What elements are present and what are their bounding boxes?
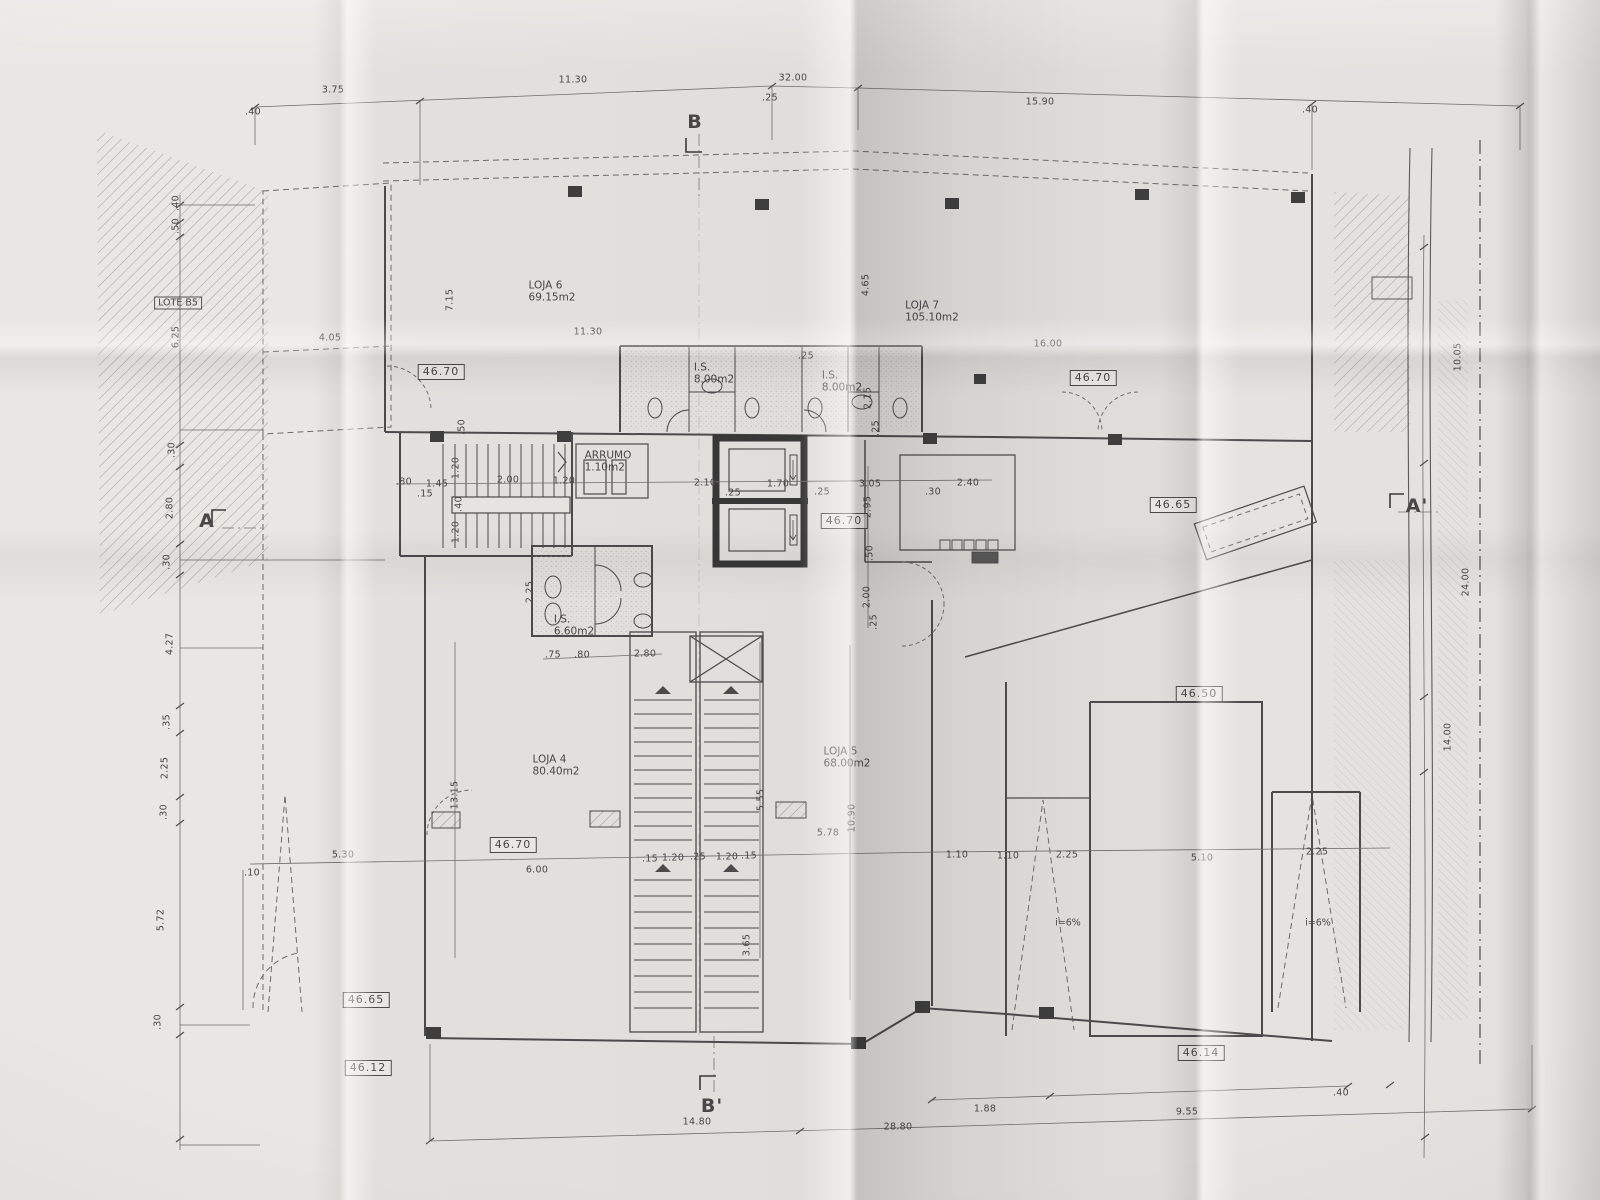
dimension-label: .40	[1302, 105, 1318, 116]
dimension-label: 2.25	[160, 757, 171, 779]
floor-plan-photo: .403.7511.3032.00.2515.90.404.0511.3016.…	[0, 0, 1600, 1200]
dimension-label: 14.80	[683, 1117, 712, 1128]
dimension-label: 9.55	[1176, 1107, 1198, 1118]
level-marker: 46.50	[1176, 686, 1223, 702]
dimension-label: 2.10	[694, 478, 716, 489]
dimension-label: 2.25	[1306, 847, 1328, 858]
dimension-label: .50	[171, 218, 182, 234]
room-label: I.S.8.00m2	[694, 362, 734, 387]
dimension-label: 5.55	[756, 789, 767, 811]
room-label-line1: I.S.	[822, 370, 862, 382]
level-marker: 46.70	[490, 837, 537, 853]
dimension-label: .30	[159, 804, 170, 820]
dimension-label: .40	[245, 107, 261, 118]
room-label-line2: 1.10m2	[585, 462, 632, 474]
level-marker: 46.12	[345, 1060, 392, 1076]
misc-label: LOTE B5	[154, 297, 202, 310]
dimension-label: 3.75	[322, 85, 344, 96]
dimension-label: .10	[244, 868, 260, 879]
room-label-line1: ARRUMO	[585, 450, 632, 462]
dimension-label: .25	[871, 420, 882, 436]
dimension-label: .15	[642, 854, 658, 865]
room-label-line1: LOJA 7	[905, 300, 959, 312]
dimension-label: 2.00	[497, 475, 519, 486]
section-marker: B	[687, 111, 702, 133]
level-marker: 46.14	[1178, 1045, 1225, 1061]
room-label: LOJA 7105.10m2	[905, 300, 959, 325]
dimension-label: 13.15	[450, 781, 461, 810]
room-label-line1: LOJA 5	[824, 746, 871, 758]
dimension-label: .30	[162, 554, 173, 570]
dimension-label: 2.25	[1056, 850, 1078, 861]
dimension-label: .75	[545, 650, 561, 661]
room-label: I.S.8.00m2	[822, 370, 862, 395]
room-label-line2: 6.60m2	[554, 626, 594, 638]
dimension-label: .25	[798, 351, 814, 362]
dimension-label: 2.40	[957, 478, 979, 489]
dimension-label: 5.72	[156, 909, 167, 931]
room-label: LOJA 669.15m2	[529, 280, 576, 305]
dimension-label: 3.65	[742, 934, 753, 956]
dimension-label: 11.30	[574, 327, 603, 338]
dimension-label: .80	[396, 477, 412, 488]
dimension-label: .40	[171, 195, 182, 211]
misc-label: i=6%	[1305, 918, 1331, 929]
room-label-line2: 69.15m2	[529, 292, 576, 304]
room-label-line2: 105.10m2	[905, 312, 959, 324]
dimension-label: 1.20	[662, 853, 684, 864]
dimension-label: .15	[741, 851, 757, 862]
room-label: ARRUMO1.10m2	[585, 450, 632, 475]
dimension-label: .25	[725, 488, 741, 499]
dimension-label: 1.10	[997, 851, 1019, 862]
level-marker: 46.70	[821, 513, 868, 529]
room-label-line2: 68.00m2	[824, 758, 871, 770]
dimension-label: 2.25	[525, 581, 536, 603]
dimension-label: 24.00	[1461, 568, 1472, 597]
dimension-label: 6.00	[526, 865, 548, 876]
dimension-label: .35	[162, 714, 173, 730]
annotation-layer: .403.7511.3032.00.2515.90.404.0511.3016.…	[0, 0, 1600, 1200]
level-marker: 46.65	[343, 992, 390, 1008]
level-marker: 46.70	[418, 364, 465, 380]
section-marker: A'	[1406, 495, 1429, 517]
dimension-label: 11.30	[559, 75, 588, 86]
room-label: LOJA 480.40m2	[533, 754, 580, 779]
dimension-label: .80	[574, 650, 590, 661]
level-marker: 46.65	[1150, 497, 1197, 513]
dimension-label: 6.25	[171, 326, 182, 348]
dimension-label: 3.05	[859, 479, 881, 490]
section-marker: A	[199, 510, 215, 532]
dimension-label: 1.10	[946, 850, 968, 861]
dimension-label: 1.20	[451, 521, 462, 543]
dimension-label: 14.00	[1443, 723, 1454, 752]
dimension-label: 10.90	[847, 804, 858, 833]
dimension-label: .25	[762, 93, 778, 104]
room-label-line1: I.S.	[554, 614, 594, 626]
dimension-label: .40	[454, 496, 465, 512]
room-label: LOJA 568.00m2	[824, 746, 871, 771]
room-label-line2: 8.00m2	[694, 374, 734, 386]
dimension-label: .50	[865, 545, 876, 561]
dimension-label: .30	[153, 1014, 164, 1030]
dimension-label: 1.20	[553, 476, 575, 487]
dimension-label: 4.65	[861, 274, 872, 296]
dimension-label: 1.88	[974, 1104, 996, 1115]
dimension-label: 5.78	[817, 828, 839, 839]
dimension-label: .15	[417, 489, 433, 500]
dimension-label: .25	[690, 852, 706, 863]
dimension-label: .40	[1333, 1088, 1349, 1099]
dimension-label: 1.70	[767, 479, 789, 490]
dimension-label: .30	[925, 487, 941, 498]
dimension-label: 32.00	[779, 73, 808, 84]
dimension-label: 2.00	[862, 586, 873, 608]
room-label: I.S.6.60m2	[554, 614, 594, 639]
dimension-label: 10.05	[1453, 343, 1464, 372]
dimension-label: 1.20	[716, 852, 738, 863]
dimension-label: 28.80	[884, 1122, 913, 1133]
dimension-label: 2.80	[165, 497, 176, 519]
dimension-label: 16.00	[1034, 339, 1063, 350]
dimension-label: 15.90	[1026, 97, 1055, 108]
dimension-label: 1.20	[451, 457, 462, 479]
room-label-line1: LOJA 4	[533, 754, 580, 766]
dimension-label: 5.10	[1191, 853, 1213, 864]
room-label-line1: I.S.	[694, 362, 734, 374]
room-label-line1: LOJA 6	[529, 280, 576, 292]
dimension-label: .50	[457, 419, 468, 435]
dimension-label: .25	[869, 614, 880, 630]
dimension-label: 5.30	[332, 850, 354, 861]
dimension-label: 4.05	[319, 333, 341, 344]
dimension-label: 4.27	[165, 633, 176, 655]
section-marker: B'	[701, 1095, 723, 1117]
misc-label: i=6%	[1055, 918, 1081, 929]
dimension-label: 7.15	[445, 289, 456, 311]
dimension-label: 2.15	[863, 387, 874, 409]
dimension-label: 2.80	[634, 649, 656, 660]
dimension-label: .30	[167, 442, 178, 458]
level-marker: 46.70	[1070, 370, 1117, 386]
dimension-label: .25	[814, 487, 830, 498]
room-label-line2: 80.40m2	[533, 766, 580, 778]
room-label-line2: 8.00m2	[822, 382, 862, 394]
